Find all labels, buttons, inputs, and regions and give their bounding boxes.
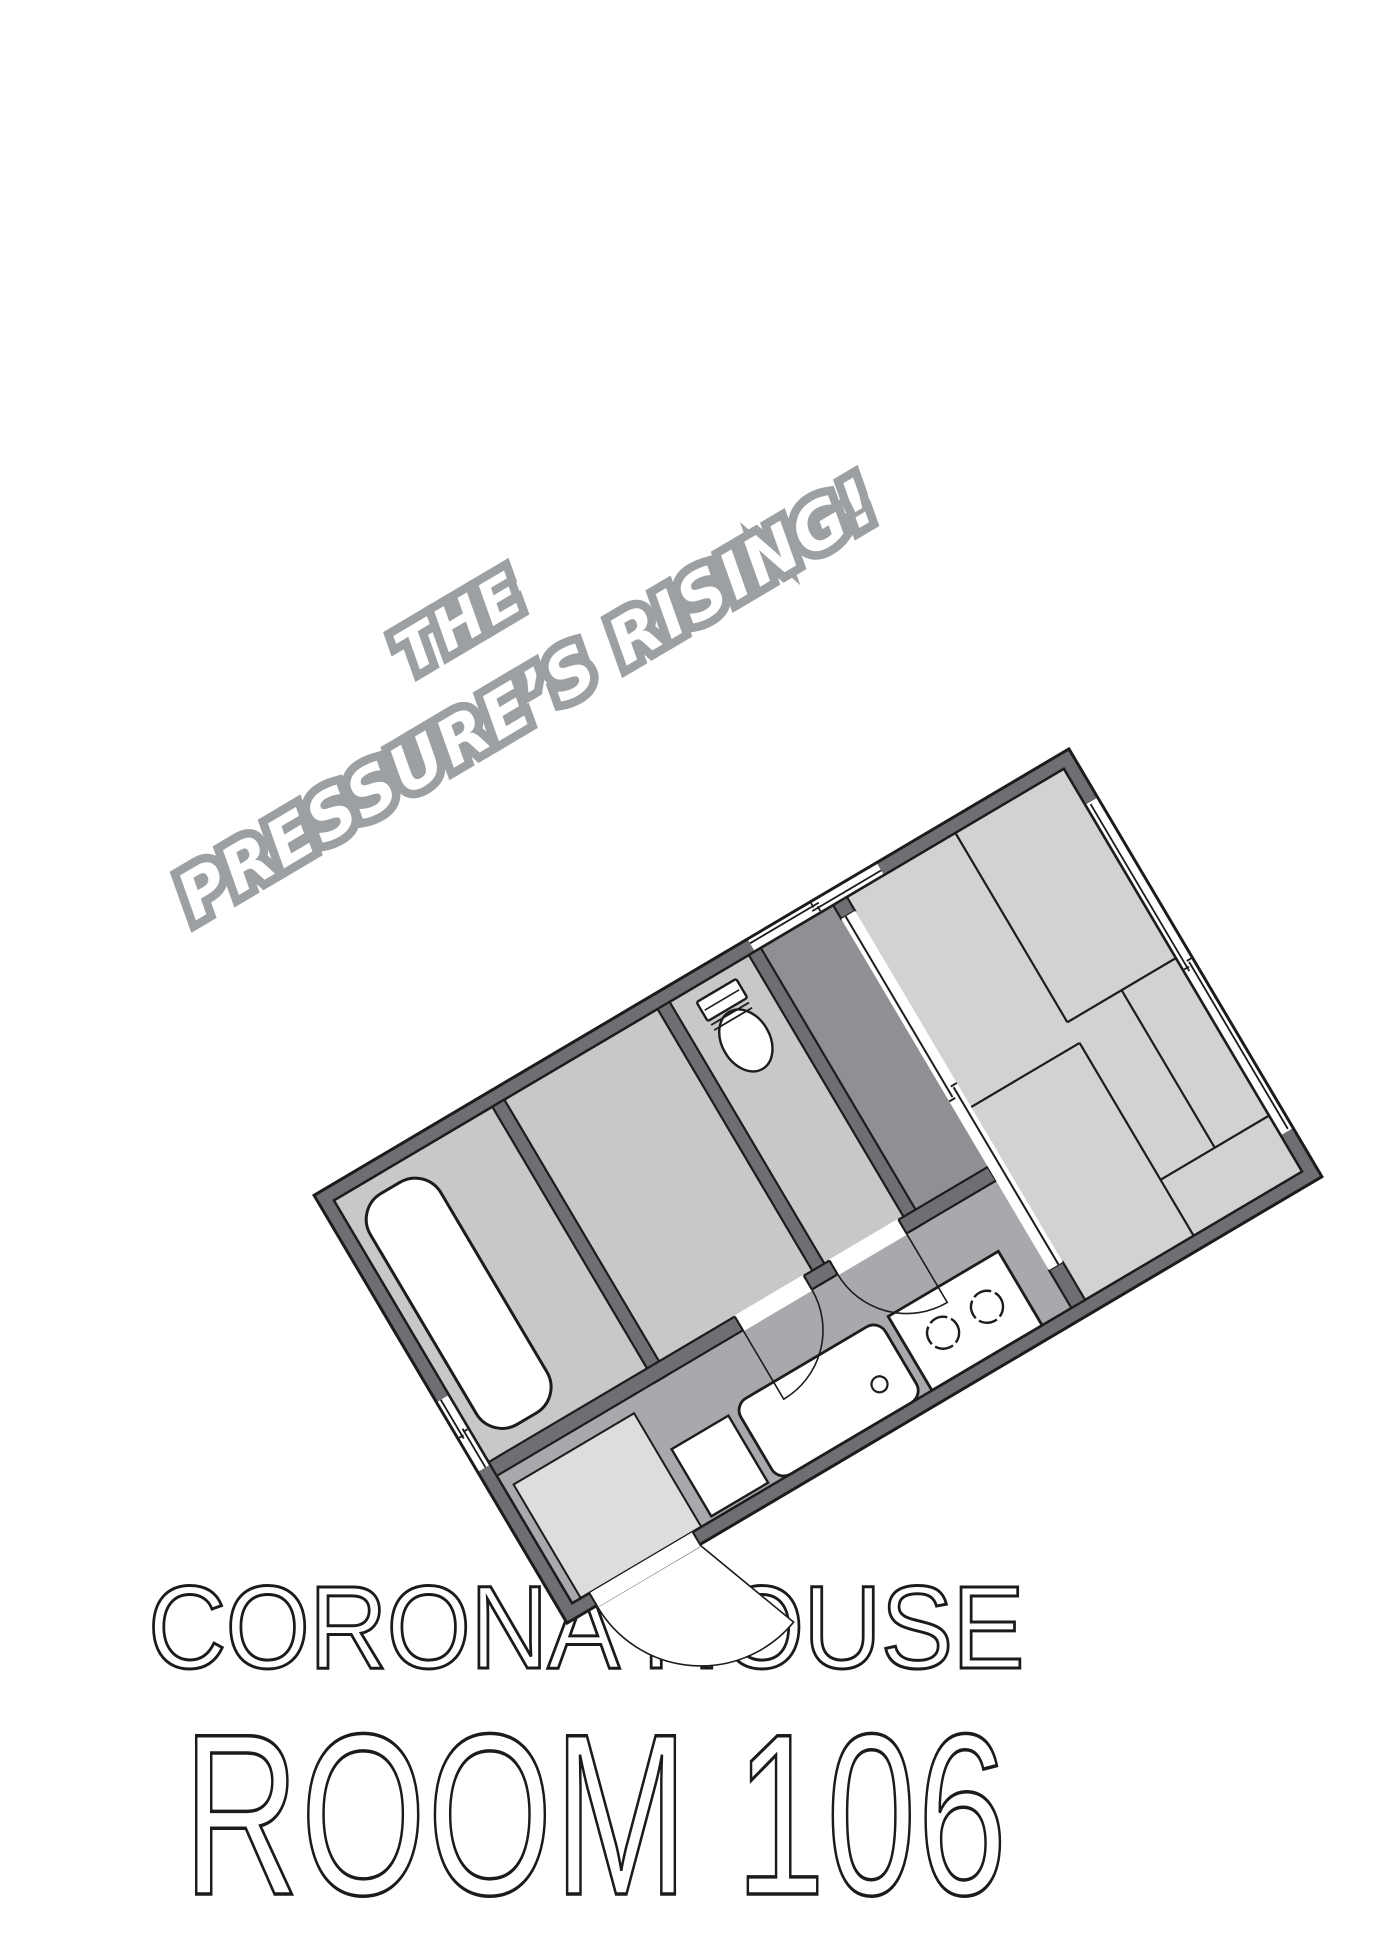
room-number: ROOM 106	[183, 1682, 1008, 1947]
floor-plan	[312, 747, 1324, 1625]
manga-title-page: THE THE PRESSURE’S RISING! PRESSURE’S RI…	[0, 0, 1400, 1954]
headline: THE THE PRESSURE’S RISING! PRESSURE’S RI…	[114, 397, 890, 990]
